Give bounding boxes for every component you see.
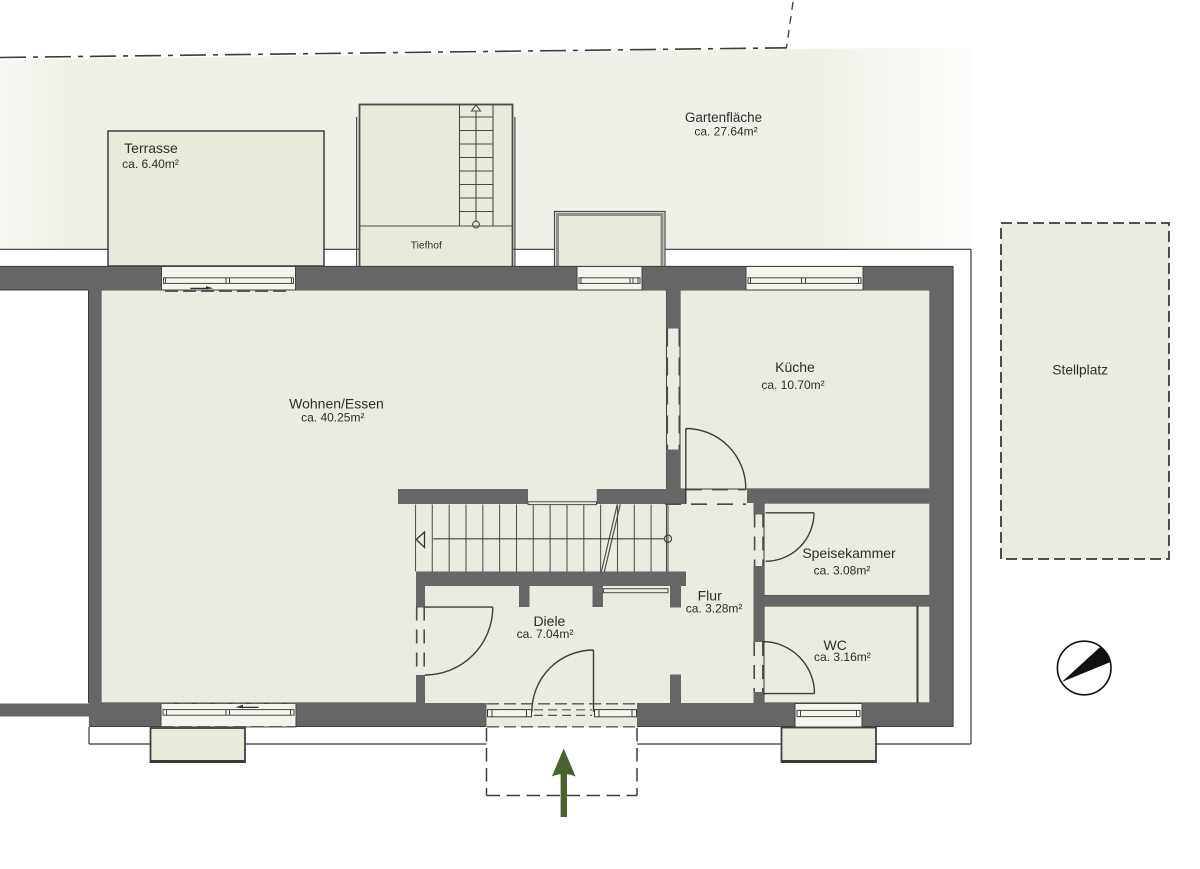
svg-text:ca. 10.70m²: ca. 10.70m² [761, 378, 824, 392]
svg-text:Wohnen/Essen: Wohnen/Essen [289, 395, 384, 411]
svg-text:Stellplatz: Stellplatz [1052, 363, 1108, 378]
svg-text:Terrasse: Terrasse [124, 140, 178, 156]
svg-text:ca. 3.16m²: ca. 3.16m² [814, 650, 871, 664]
svg-text:Küche: Küche [775, 359, 815, 375]
svg-text:ca. 3.08m²: ca. 3.08m² [814, 564, 871, 578]
svg-text:Tiefhof: Tiefhof [411, 241, 442, 252]
svg-text:ca. 6.40m²: ca. 6.40m² [122, 157, 179, 171]
svg-text:ca. 7.04m²: ca. 7.04m² [517, 627, 574, 641]
svg-text:Speisekammer: Speisekammer [802, 545, 896, 561]
svg-text:ca. 3.28m²: ca. 3.28m² [686, 601, 743, 615]
svg-text:Gartenfläche: Gartenfläche [685, 110, 762, 125]
svg-text:ca. 40.25m²: ca. 40.25m² [301, 411, 364, 425]
svg-text:ca. 27.64m²: ca. 27.64m² [694, 125, 757, 139]
